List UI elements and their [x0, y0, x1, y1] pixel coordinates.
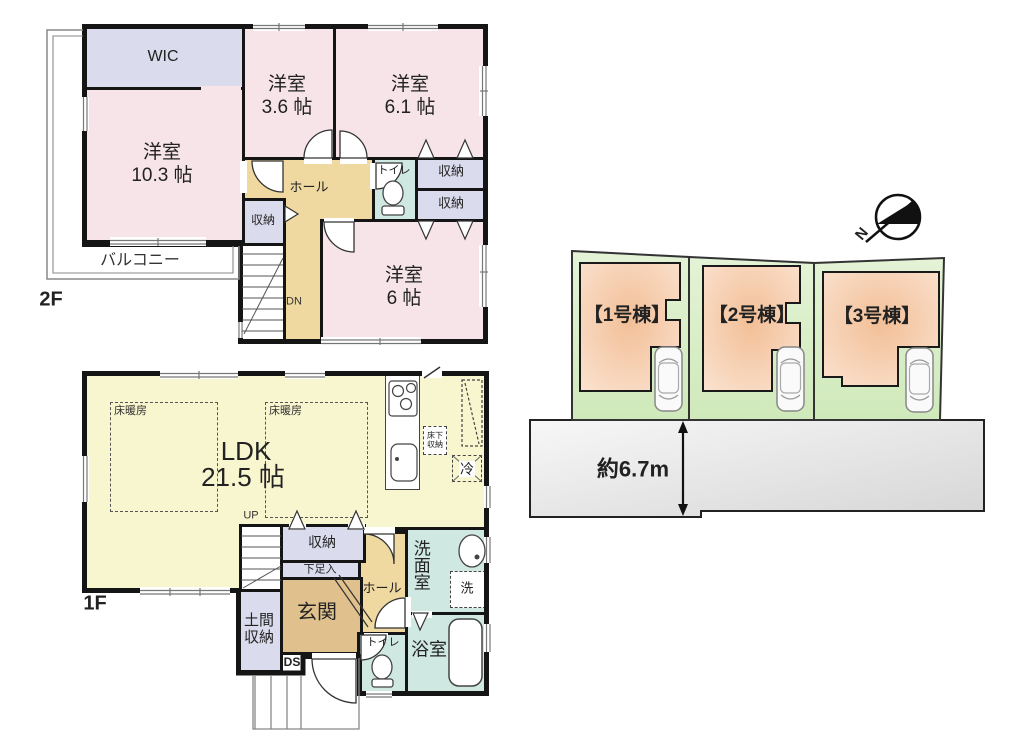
- room-3-6-size: 3.6 帖: [262, 97, 313, 119]
- closet-2f-small-label: 収納: [251, 214, 275, 228]
- stairs-2f: [239, 243, 286, 343]
- entrance-label: 玄関: [297, 602, 337, 625]
- ds-label: DS: [284, 656, 301, 670]
- road-width-arrow: [678, 421, 688, 516]
- closet-1f-label: 収納: [308, 534, 336, 550]
- room-6-size: 6 帖: [387, 288, 422, 310]
- doma-storage-label: 土間収納: [242, 612, 276, 647]
- wic-label: WIC: [147, 48, 178, 66]
- toilet-1f-label: トイレ: [367, 637, 400, 650]
- closet-2f-a-label: 収納: [438, 165, 464, 180]
- room-3-6-name: 洋室: [268, 74, 306, 96]
- bath-label: 浴室: [411, 640, 447, 661]
- room-10-3-size: 10.3 帖: [131, 165, 192, 187]
- floor-heating-zone-left: [110, 402, 218, 512]
- underfloor-storage-label: 床下収納: [426, 431, 445, 449]
- car-3: [906, 348, 933, 412]
- hall-1f-label: ホール: [362, 582, 401, 597]
- kitchen-counter: [385, 375, 420, 490]
- room-6-1-size: 6.1 帖: [385, 97, 436, 119]
- corridor-2f: [283, 219, 323, 343]
- washroom-label: 洗面室: [410, 540, 430, 591]
- hall-2f-label: ホール: [289, 181, 328, 196]
- site-lots: [572, 251, 944, 420]
- floor-1f-label: 1F: [83, 593, 106, 616]
- closet-2f-b-label: 収納: [438, 197, 464, 212]
- floor-2f-label: 2F: [39, 289, 62, 312]
- floor-heating-right-label: 床暖房: [269, 405, 302, 417]
- floor-plan-page: WIC 洋室 10.3 帖 洋室 3.6 帖 洋室 6.1 帖 ホール トイレ …: [0, 0, 1024, 752]
- room-6-1-name: 洋室: [391, 74, 429, 96]
- car-1: [655, 347, 682, 411]
- north-label: N: [852, 224, 872, 243]
- north-compass-icon: [866, 195, 920, 242]
- up-label: UP: [243, 510, 258, 523]
- shoe-cabinet-label: 下足入: [304, 564, 337, 577]
- balcony-label: バルコニー: [100, 252, 180, 270]
- road-width-label: 約6.7m: [597, 456, 669, 481]
- ldk-size: 21.5 帖: [201, 463, 285, 493]
- stairs-1f: [239, 524, 283, 592]
- toilet-2f-label: トイレ: [378, 165, 411, 178]
- car-2: [777, 347, 804, 411]
- dn-label: DN: [286, 296, 302, 309]
- room-6-name: 洋室: [385, 265, 423, 287]
- building-3-label: 【3号棟】: [834, 306, 921, 328]
- room-10-3-name: 洋室: [143, 142, 181, 164]
- building-2-label: 【2号棟】: [709, 305, 796, 327]
- building-1-label: 【1号棟】: [584, 305, 671, 327]
- floor-heating-left-label: 床暖房: [114, 405, 147, 417]
- fridge-label: 冷: [459, 461, 475, 477]
- washer-label: 洗: [460, 582, 473, 597]
- floor-heating-zone-right: [265, 402, 368, 518]
